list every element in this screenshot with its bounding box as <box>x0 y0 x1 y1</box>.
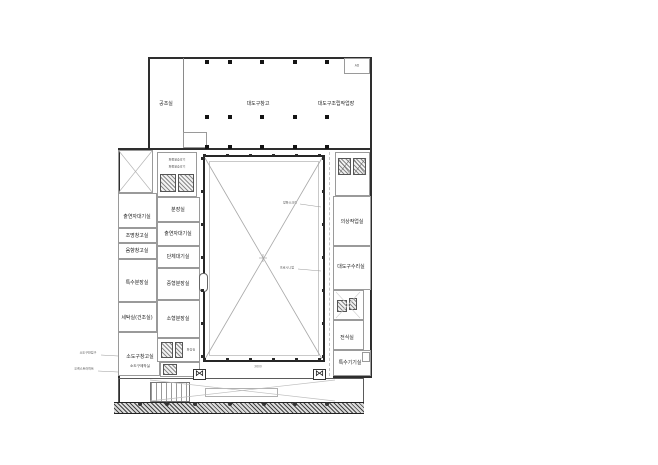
stage-lift-icon: ⋈ <box>193 369 206 380</box>
column-dot <box>262 402 266 406</box>
column-marker <box>228 60 232 64</box>
room-hall-storage-label: 대도구창고 <box>247 101 270 106</box>
column-marker <box>228 145 232 149</box>
stage-lift-glyph: ⋈ <box>315 370 324 379</box>
wall-tick <box>322 157 325 160</box>
wall-tick <box>226 154 229 157</box>
column-marker <box>293 115 297 119</box>
room-right-costume-label: 의상작업실 <box>341 219 364 224</box>
room-left-waiting-label: 출연자대기실 <box>123 214 150 219</box>
wall-tick <box>249 358 252 361</box>
room-left-prop-workshop-label: 소도구제작실 <box>130 364 150 368</box>
column-marker <box>325 115 329 119</box>
wall-tick <box>322 355 325 358</box>
column-marker <box>228 115 232 119</box>
wall-tick <box>318 358 321 361</box>
room-left-laundry-label: 세탁실(건조실) <box>121 315 152 320</box>
hall-left-wall <box>148 57 150 150</box>
room-right-special-equip-label: 특수기기실 <box>339 360 362 365</box>
column-marker <box>293 60 297 64</box>
wall-tick <box>201 355 204 358</box>
room-mid-makeup-m-label: 중형분장실 <box>167 281 190 286</box>
column-marker <box>205 115 209 119</box>
wall-tick <box>322 190 325 193</box>
wall-tick <box>318 154 321 157</box>
elevator-shaft-icon <box>353 158 366 175</box>
column-dot <box>325 402 329 406</box>
column-marker <box>325 145 329 149</box>
pit-equipment <box>205 388 278 397</box>
special-equip-closet <box>362 352 370 362</box>
elevator-shaft-icon <box>338 158 351 175</box>
column-marker <box>205 145 209 149</box>
column-dot <box>138 402 142 406</box>
column-dot <box>228 402 232 406</box>
stage-inner-line <box>209 161 319 356</box>
column-dot <box>193 402 197 406</box>
wall-tick <box>322 223 325 226</box>
room-hvac-label: 공조실 <box>159 101 173 106</box>
wall-tick <box>201 322 204 325</box>
wall-tick <box>322 256 325 259</box>
wall-tick <box>322 322 325 325</box>
wall-tick <box>272 154 275 157</box>
fire-screen-annotation: 방화스크린 <box>283 201 297 204</box>
room-right-elec-label: 전식실 <box>340 335 354 340</box>
room-mid-waiting-b-label: 단체대기실 <box>167 254 190 259</box>
utility-fixture-icon <box>337 300 347 312</box>
wall-tick <box>322 289 325 292</box>
wall-tick <box>295 358 298 361</box>
pit-stair-icon <box>150 382 190 402</box>
column-marker <box>260 115 264 119</box>
room-mid-makeup-s-label: 소형분장실 <box>167 316 190 321</box>
wall-tick <box>203 358 206 361</box>
floor-plan-canvas: AD 공조실 대도구창고 대도구조립작업장 출연자대기실 조명창고실 음향창고실… <box>0 0 658 465</box>
column-marker <box>205 60 209 64</box>
corner-shaft-label: AD <box>355 64 359 67</box>
room-left-prop-storage-label: 소도구창고실 <box>126 354 153 359</box>
toilet-fixture-icon <box>161 342 173 358</box>
room-left-waiting <box>118 193 157 228</box>
wall-tick <box>201 289 204 292</box>
wall-tick <box>295 154 298 157</box>
room-left-special-makeup-label: 특수분장실 <box>126 280 149 285</box>
wall-tick <box>201 157 204 160</box>
toilet-fixture-icon <box>175 342 183 358</box>
room-left-light-storage-label: 조명창고실 <box>126 233 149 238</box>
freight-elevator-label: 화물용승강기 <box>169 158 186 161</box>
freight-elevator-label: 화물용승강기 <box>169 165 186 168</box>
room-mid-waiting-a-label: 출연자대기실 <box>164 231 191 236</box>
wall-tick <box>249 154 252 157</box>
elevator-shaft-icon <box>178 174 194 192</box>
dimension-label: 3600 <box>254 365 262 368</box>
room-mid-makeup-label: 분장실 <box>171 207 185 212</box>
column-dot <box>293 402 297 406</box>
room-mid-toilet-label: 화장실 <box>187 348 195 351</box>
wall-tick <box>272 358 275 361</box>
proscenium-annotation: 프로시니엄 <box>280 266 294 269</box>
column-marker <box>293 145 297 149</box>
column-dot <box>165 402 169 406</box>
room-right-prop-repair-label: 대도구수리실 <box>337 264 364 269</box>
column-marker <box>260 60 264 64</box>
stage-lift-glyph: ⋈ <box>195 370 204 379</box>
corridor-line <box>329 152 330 376</box>
hall-bottom-wall <box>118 148 372 150</box>
room-left-sound-storage-label: 음향창고실 <box>126 248 149 253</box>
hall-closet <box>183 132 207 148</box>
wall-tick <box>201 223 204 226</box>
hall-top-wall <box>148 57 372 59</box>
stage-lift-icon: ⋈ <box>313 369 326 380</box>
dock-annotation: 소도구반입구 <box>80 351 97 354</box>
room-hall-workshop-label: 대도구조립작업장 <box>318 101 355 106</box>
wall-tick <box>226 358 229 361</box>
wall-tick <box>201 256 204 259</box>
wall-tick <box>201 190 204 193</box>
pit-annotation: 오케스트라피트 <box>74 367 94 370</box>
elevator-shaft-icon <box>160 174 176 192</box>
column-marker <box>325 60 329 64</box>
stairwell-topleft <box>118 150 153 193</box>
utility-fixture-icon <box>349 298 357 310</box>
column-marker <box>260 145 264 149</box>
equipment-icon <box>163 364 177 375</box>
